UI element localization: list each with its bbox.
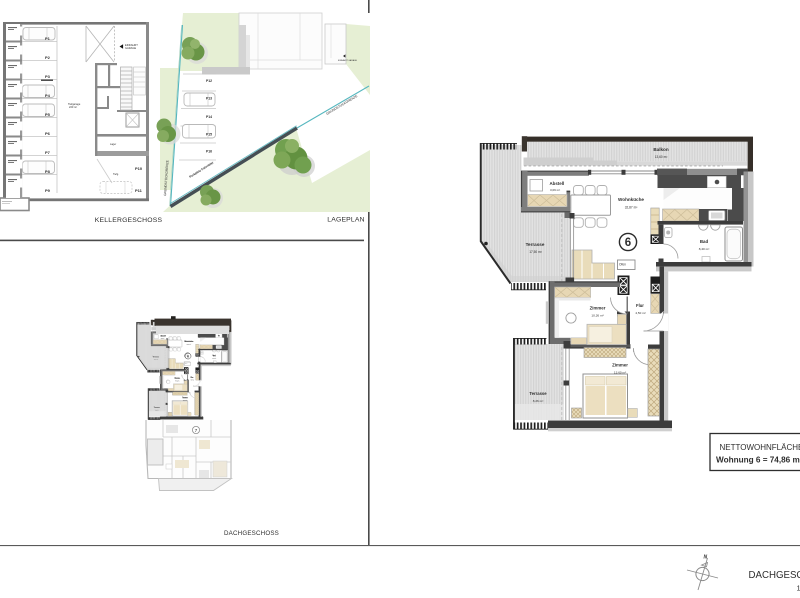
- svg-text:Tiefg.: Tiefg.: [113, 173, 119, 176]
- svg-text:13,60 m²: 13,60 m²: [614, 371, 626, 375]
- svg-text:P3: P3: [45, 74, 51, 79]
- svg-text:17,50 m²: 17,50 m²: [529, 250, 542, 254]
- svg-text:13,60 m²: 13,60 m²: [655, 155, 668, 159]
- svg-text:7: 7: [195, 428, 198, 434]
- svg-text:Ofen: Ofen: [619, 263, 626, 267]
- svg-text:P5: P5: [45, 112, 51, 117]
- svg-text:Abstell: Abstell: [550, 181, 565, 186]
- svg-text:P11: P11: [135, 188, 143, 193]
- svg-text:Flur: Flur: [636, 303, 644, 308]
- svg-text:Terrasse: Terrasse: [529, 391, 547, 396]
- svg-text:P16: P16: [206, 150, 212, 154]
- svg-text:Wohnung 6 = 74,86 m²: Wohnung 6 = 74,86 m²: [716, 456, 800, 465]
- svg-text:P2: P2: [45, 55, 51, 60]
- svg-text:N: N: [704, 555, 708, 561]
- svg-text:8,26 m²: 8,26 m²: [533, 399, 544, 403]
- svg-text:10,26 m²: 10,26 m²: [591, 314, 603, 318]
- svg-text:Zimmer: Zimmer: [612, 363, 628, 368]
- svg-text:P8: P8: [45, 169, 51, 174]
- svg-text:1:100: 1:100: [797, 584, 800, 593]
- svg-text:Bad: Bad: [700, 239, 709, 244]
- svg-text:3,09 m²: 3,09 m²: [550, 188, 560, 192]
- svg-text:P14: P14: [206, 115, 212, 119]
- svg-text:P6: P6: [45, 131, 51, 136]
- svg-text:P4: P4: [45, 93, 51, 98]
- svg-text:Wohnküche: Wohnküche: [618, 197, 644, 202]
- svg-text:4,50 m²: 4,50 m²: [635, 311, 645, 315]
- svg-text:P12: P12: [206, 79, 212, 83]
- svg-text:8,40 m²: 8,40 m²: [699, 247, 710, 251]
- svg-text:32,87 m²: 32,87 m²: [625, 206, 638, 210]
- svg-text:P10: P10: [135, 166, 143, 171]
- svg-text:P15: P15: [206, 133, 212, 137]
- svg-text:KELLERGESCHOSS: KELLERGESCHOSS: [95, 217, 163, 224]
- svg-text:EINFAHRT GARAGE: EINFAHRT GARAGE: [338, 59, 358, 62]
- svg-text:Zimmer: Zimmer: [590, 306, 606, 311]
- svg-text:P9: P9: [45, 188, 51, 193]
- svg-text:6: 6: [625, 237, 631, 249]
- svg-text:P1: P1: [45, 36, 51, 41]
- svg-text:220 m²: 220 m²: [69, 105, 77, 109]
- svg-text:Balkon: Balkon: [653, 147, 669, 152]
- svg-text:LAGEPLAN: LAGEPLAN: [327, 217, 365, 224]
- svg-text:NETTOWOHNFLÄCHE:: NETTOWOHNFLÄCHE:: [720, 443, 800, 452]
- svg-text:P7: P7: [45, 150, 51, 155]
- svg-text:GARAGE: GARAGE: [125, 46, 136, 50]
- svg-text:EINFAHRT: EINFAHRT: [125, 43, 138, 47]
- svg-text:P13: P13: [206, 97, 212, 101]
- svg-text:DACHGESCHOSS: DACHGESCHOSS: [224, 530, 279, 537]
- svg-text:DACHGESCHOSS: DACHGESCHOSS: [749, 570, 800, 581]
- svg-text:Terrasse: Terrasse: [526, 242, 545, 247]
- svg-text:Lager: Lager: [110, 143, 116, 146]
